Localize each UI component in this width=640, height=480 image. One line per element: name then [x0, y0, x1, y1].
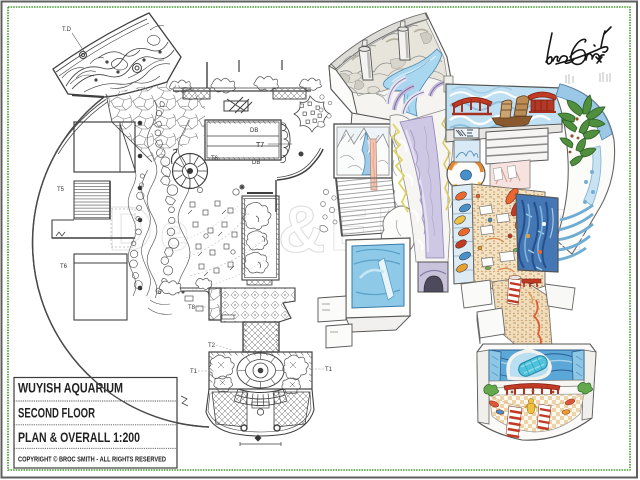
svg-text:DB: DB	[250, 128, 258, 134]
svg-text:T1: T1	[190, 369, 198, 375]
svg-text:SECOND FLOOR: SECOND FLOOR	[18, 405, 95, 421]
svg-text:&: &	[278, 192, 326, 266]
svg-text:T.D: T.D	[62, 27, 72, 33]
svg-text:T1: T1	[325, 367, 333, 373]
svg-text:DB: DB	[252, 160, 260, 166]
svg-text:T6: T6	[60, 264, 68, 270]
svg-text:WUYISH AQUARIUM: WUYISH AQUARIUM	[18, 380, 123, 396]
svg-text:T2: T2	[208, 343, 216, 349]
svg-text:T8: T8	[188, 305, 196, 311]
svg-text:PLAN & OVERALL 1:200: PLAN & OVERALL 1:200	[18, 429, 140, 445]
svg-text:T5: T5	[57, 187, 65, 193]
svg-text:COPYRIGHT © BROC SMITH - ALL R: COPYRIGHT © BROC SMITH - ALL RIGHTS RESE…	[18, 455, 166, 464]
svg-text:T7: T7	[256, 142, 264, 149]
svg-text:T6: T6	[211, 156, 219, 162]
